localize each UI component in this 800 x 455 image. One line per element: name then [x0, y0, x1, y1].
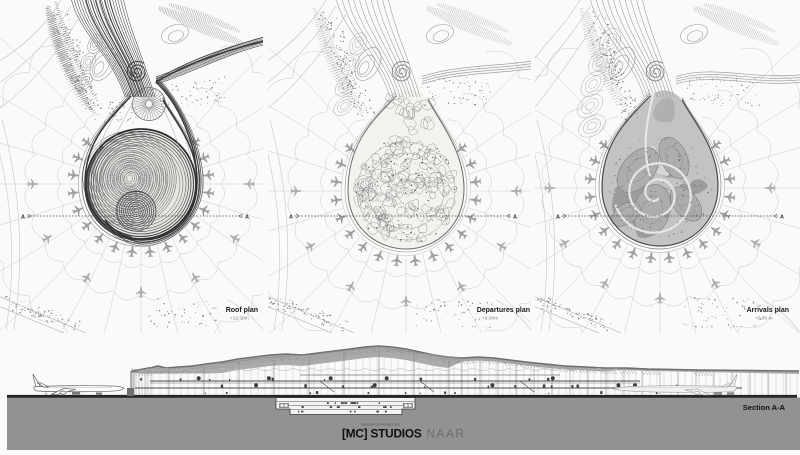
svg-text:+8.00m: +8.00m: [482, 316, 498, 322]
svg-text:Arrivals plan: Arrivals plan: [747, 307, 789, 314]
svg-text:A: A: [21, 215, 25, 221]
svg-text:Roof plan: Roof plan: [226, 307, 258, 314]
svg-text:A: A: [513, 215, 517, 221]
svg-text:A: A: [780, 215, 784, 221]
svg-text:A: A: [245, 215, 249, 221]
svg-text:Departures plan: Departures plan: [477, 307, 530, 314]
svg-text:Section A-A: Section A-A: [743, 403, 786, 412]
svg-text:+0.00 m: +0.00 m: [755, 316, 772, 322]
svg-text:+12.00m: +12.00m: [230, 316, 249, 322]
svg-text:A: A: [289, 215, 293, 221]
svg-text:[MC] STUDIOS NAAR: [MC] STUDIOS NAAR: [342, 427, 466, 441]
svg-text:A: A: [556, 215, 560, 221]
